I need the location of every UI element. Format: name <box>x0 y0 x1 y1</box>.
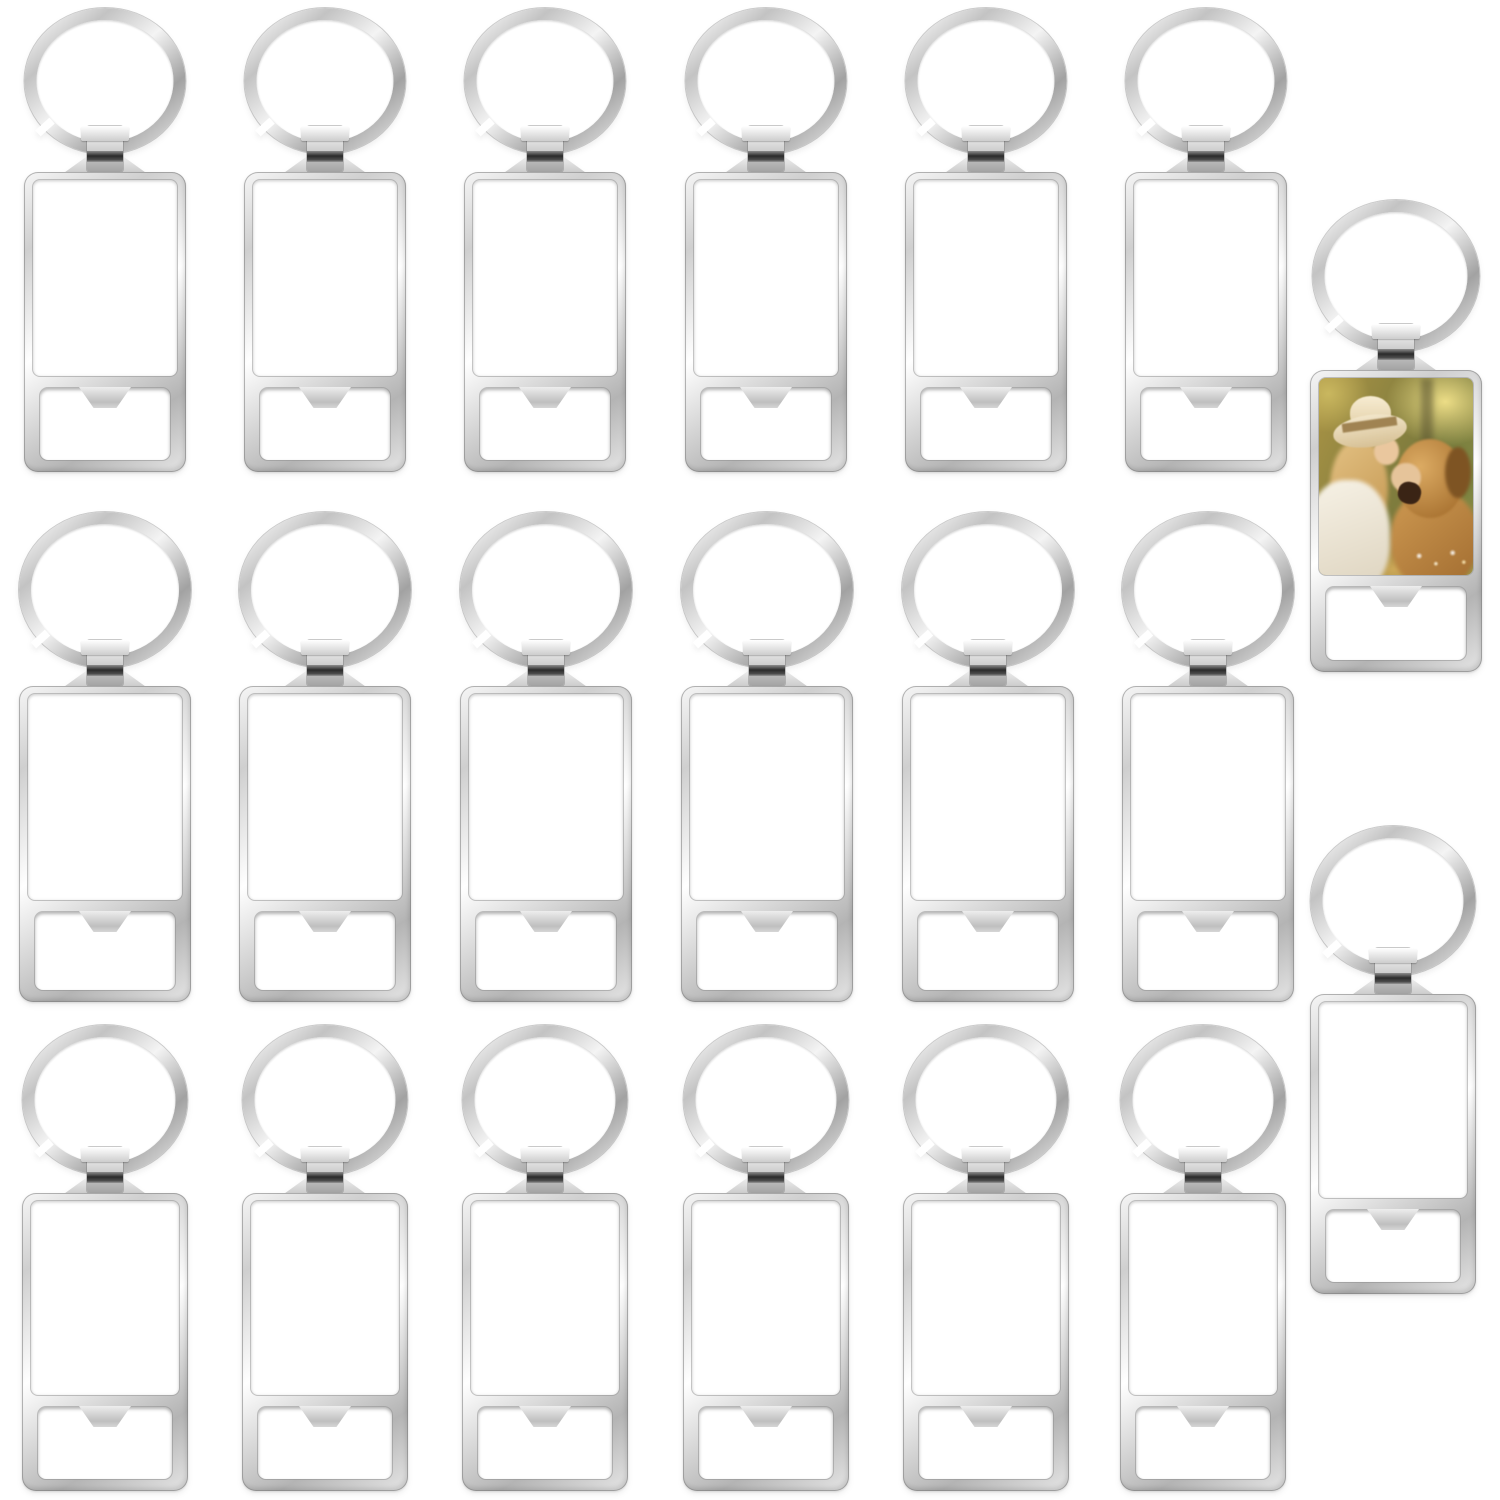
split-ring-gap <box>1322 939 1341 958</box>
sublimation-panel <box>694 180 838 376</box>
bottle-opener-hole <box>921 388 1051 460</box>
connector-clamp <box>87 1147 123 1193</box>
clamp-dark-band <box>527 1172 563 1183</box>
clamp-top-lip <box>1184 640 1232 655</box>
clamp-top-lip <box>1372 324 1420 339</box>
keychain-row1-col2 <box>244 8 406 472</box>
split-ring-gap <box>36 118 55 137</box>
connector-clamp <box>527 1147 563 1193</box>
clamp-top-lip <box>521 1147 569 1162</box>
clamp-top-lip <box>522 640 570 655</box>
clamp-dark-band <box>968 1172 1004 1183</box>
bottle-opener-hole <box>699 1407 833 1479</box>
bottle-opener-hole <box>478 1407 612 1479</box>
keychain-body-frame <box>244 172 406 472</box>
key-ring-hole <box>37 20 174 142</box>
split-ring-gap <box>915 1138 934 1157</box>
split-ring-gap <box>693 630 712 649</box>
keychain-body-frame <box>1310 994 1476 1294</box>
clamp-dark-band <box>1378 349 1414 360</box>
keychain-body-frame <box>1310 370 1482 672</box>
keychain-row1-col3 <box>464 8 626 472</box>
bottle-opener-tab <box>740 1406 792 1427</box>
sublimation-panel <box>253 180 397 376</box>
key-ring-hole <box>914 524 1062 656</box>
photo-wildflowers <box>1408 542 1470 574</box>
bottle-opener-tab <box>520 911 572 932</box>
split-ring-gap <box>1132 1138 1151 1157</box>
bottle-opener-tab <box>519 1406 571 1427</box>
keychain-body-frame <box>464 172 626 472</box>
sublimation-panel <box>914 180 1058 376</box>
keychain-row3-col1 <box>22 1025 188 1491</box>
bottle-opener-tab <box>962 911 1014 932</box>
keychain-body-frame <box>1122 686 1294 1002</box>
clamp-top-lip <box>962 1147 1010 1162</box>
key-ring-hole <box>475 1037 616 1163</box>
bottle-opener-tab <box>1180 387 1232 408</box>
keychain-body-frame <box>905 172 1067 472</box>
sublimation-panel <box>692 1201 840 1395</box>
connector-clamp <box>968 1147 1004 1193</box>
key-ring-hole <box>477 20 614 142</box>
connector-clamp <box>970 640 1006 686</box>
connector-clamp <box>527 126 563 172</box>
clamp-top-lip <box>81 640 129 655</box>
clamp-dark-band <box>1375 973 1411 984</box>
keychain-body-frame <box>681 686 853 1002</box>
keychain-row1-col4 <box>685 8 847 472</box>
bottle-opener-hole <box>258 1407 392 1479</box>
bottle-opener-hole <box>35 912 175 990</box>
key-ring-hole <box>1138 20 1275 142</box>
clamp-dark-band <box>1185 1172 1221 1183</box>
clamp-dark-band <box>307 1172 343 1183</box>
clamp-dark-band <box>970 665 1006 676</box>
sublimation-panel <box>251 1201 399 1395</box>
bottle-opener-hole <box>38 1407 172 1479</box>
clamp-top-lip <box>742 1147 790 1162</box>
clamp-dark-band <box>87 151 123 162</box>
connector-clamp <box>748 1147 784 1193</box>
key-ring-hole <box>916 1037 1057 1163</box>
split-ring-gap <box>34 1138 53 1157</box>
keychain-row3-col5 <box>903 1025 1069 1491</box>
clamp-dark-band <box>1190 665 1226 676</box>
bottle-opener-hole <box>1326 1210 1460 1282</box>
split-ring-gap <box>254 1138 273 1157</box>
clamp-dark-band <box>307 665 343 676</box>
clamp-top-lip <box>521 126 569 141</box>
clamp-top-lip <box>742 126 790 141</box>
sublimation-panel <box>1131 694 1285 900</box>
connector-clamp <box>528 640 564 686</box>
bottle-opener-tab <box>299 1406 351 1427</box>
connector-clamp <box>748 126 784 172</box>
bottle-opener-hole <box>1141 388 1271 460</box>
keychain-body-frame <box>460 686 632 1002</box>
keychain-body-frame <box>242 1193 408 1491</box>
keychain-row3-col6 <box>1120 1025 1286 1491</box>
photo-woman-dress <box>1319 480 1390 575</box>
connector-clamp <box>1190 640 1226 686</box>
keychain-side-blank <box>1310 826 1476 1294</box>
sublimation-panel <box>469 694 623 900</box>
keychain-body-frame <box>685 172 847 472</box>
clamp-dark-band <box>527 151 563 162</box>
key-ring-hole <box>35 1037 176 1163</box>
connector-clamp <box>307 640 343 686</box>
key-ring-hole <box>257 20 394 142</box>
bottle-opener-tab <box>519 387 571 408</box>
key-ring-hole <box>693 524 841 656</box>
clamp-top-lip <box>1179 1147 1227 1162</box>
sublimation-panel <box>1129 1201 1277 1395</box>
keychain-row3-col4 <box>683 1025 849 1491</box>
split-ring-gap <box>697 118 716 137</box>
clamp-top-lip <box>1182 126 1230 141</box>
clamp-top-lip <box>743 640 791 655</box>
key-ring-hole <box>1323 838 1464 964</box>
bottle-opener-tab <box>960 387 1012 408</box>
connector-clamp <box>968 126 1004 172</box>
split-ring-gap <box>914 630 933 649</box>
split-ring-gap <box>1134 630 1153 649</box>
bottle-opener-hole <box>1326 587 1466 660</box>
key-ring-hole <box>472 524 620 656</box>
clamp-dark-band <box>307 151 343 162</box>
clamp-dark-band <box>87 1172 123 1183</box>
clamp-top-lip <box>301 126 349 141</box>
sublimation-panel <box>690 694 844 900</box>
keychain-row1-col6 <box>1125 8 1287 472</box>
bottle-opener-hole <box>1138 912 1278 990</box>
connector-clamp <box>1375 948 1411 994</box>
keychain-row1-col5 <box>905 8 1067 472</box>
keychain-row2-col4 <box>681 512 853 1002</box>
keychain-body-frame <box>19 686 191 1002</box>
bottle-opener-hole <box>701 388 831 460</box>
bottle-opener-tab <box>1177 1406 1229 1427</box>
bottle-opener-hole <box>255 912 395 990</box>
key-ring-hole <box>255 1037 396 1163</box>
keychain-body-frame <box>903 1193 1069 1491</box>
clamp-top-lip <box>81 1147 129 1162</box>
keychain-body-frame <box>902 686 1074 1002</box>
keychain-body-frame <box>239 686 411 1002</box>
sublimation-panel <box>1134 180 1278 376</box>
bottle-opener-hole <box>40 388 170 460</box>
bottle-opener-hole <box>1136 1407 1270 1479</box>
connector-clamp <box>307 126 343 172</box>
keychain-row2-col2 <box>239 512 411 1002</box>
sublimation-panel <box>471 1201 619 1395</box>
connector-clamp <box>1378 324 1414 370</box>
keychain-row2-col1 <box>19 512 191 1002</box>
sublimation-panel <box>248 694 402 900</box>
keychain-row2-col3 <box>460 512 632 1002</box>
sublimation-panel <box>912 1201 1060 1395</box>
sublimation-panel <box>1319 1002 1467 1198</box>
key-ring-hole <box>918 20 1055 142</box>
bottle-opener-tab <box>299 911 351 932</box>
clamp-dark-band <box>748 1172 784 1183</box>
split-ring-gap <box>695 1138 714 1157</box>
keychain-body-frame <box>22 1193 188 1491</box>
key-ring-hole <box>1325 212 1468 340</box>
bottle-opener-tab <box>1182 911 1234 932</box>
bottle-opener-hole <box>480 388 610 460</box>
clamp-dark-band <box>528 665 564 676</box>
split-ring-gap <box>256 118 275 137</box>
key-ring-hole <box>1133 1037 1274 1163</box>
sample-photo-print <box>1319 378 1473 575</box>
keychain-body-frame <box>1125 172 1287 472</box>
clamp-dark-band <box>748 151 784 162</box>
keychain-body-frame <box>24 172 186 472</box>
product-photo-canvas <box>0 0 1500 1500</box>
bottle-opener-tab <box>79 911 131 932</box>
bottle-opener-tab <box>79 1406 131 1427</box>
bottle-opener-hole <box>697 912 837 990</box>
key-ring-hole <box>1134 524 1282 656</box>
keychain-row3-col2 <box>242 1025 408 1491</box>
bottle-opener-hole <box>260 388 390 460</box>
connector-clamp <box>1185 1147 1221 1193</box>
split-ring-gap <box>1137 118 1156 137</box>
split-ring-gap <box>917 118 936 137</box>
clamp-top-lip <box>301 640 349 655</box>
bottle-opener-tab <box>741 911 793 932</box>
sublimation-panel <box>1319 378 1473 575</box>
bottle-opener-tab <box>960 1406 1012 1427</box>
keychain-row2-col5 <box>902 512 1074 1002</box>
keychain-row2-col6 <box>1122 512 1294 1002</box>
clamp-dark-band <box>968 151 1004 162</box>
key-ring-hole <box>696 1037 837 1163</box>
sublimation-panel <box>31 1201 179 1395</box>
sublimation-panel <box>33 180 177 376</box>
connector-clamp <box>87 640 123 686</box>
split-ring-gap <box>476 118 495 137</box>
split-ring-gap <box>474 1138 493 1157</box>
keychain-body-frame <box>462 1193 628 1491</box>
clamp-top-lip <box>1369 948 1417 963</box>
bottle-opener-hole <box>919 1407 1053 1479</box>
connector-clamp <box>87 126 123 172</box>
bottle-opener-hole <box>476 912 616 990</box>
bottle-opener-tab <box>1370 586 1422 607</box>
clamp-top-lip <box>81 126 129 141</box>
connector-clamp <box>749 640 785 686</box>
bottle-opener-hole <box>918 912 1058 990</box>
sublimation-panel <box>28 694 182 900</box>
key-ring-hole <box>698 20 835 142</box>
split-ring-gap <box>472 630 491 649</box>
sublimation-panel <box>911 694 1065 900</box>
clamp-dark-band <box>749 665 785 676</box>
sublimation-panel <box>473 180 617 376</box>
connector-clamp <box>307 1147 343 1193</box>
bottle-opener-tab <box>740 387 792 408</box>
bottle-opener-tab <box>299 387 351 408</box>
clamp-dark-band <box>1188 151 1224 162</box>
bottle-opener-tab <box>1367 1209 1419 1230</box>
split-ring-gap <box>31 630 50 649</box>
clamp-dark-band <box>87 665 123 676</box>
split-ring-gap <box>1324 315 1343 334</box>
keychain-row3-col3 <box>462 1025 628 1491</box>
key-ring-hole <box>31 524 179 656</box>
bottle-opener-tab <box>79 387 131 408</box>
clamp-top-lip <box>962 126 1010 141</box>
key-ring-hole <box>251 524 399 656</box>
clamp-top-lip <box>964 640 1012 655</box>
clamp-top-lip <box>301 1147 349 1162</box>
connector-clamp <box>1188 126 1224 172</box>
keychain-body-frame <box>1120 1193 1286 1491</box>
split-ring-gap <box>251 630 270 649</box>
keychain-body-frame <box>683 1193 849 1491</box>
keychain-side-printed-sample <box>1310 200 1482 672</box>
keychain-row1-col1 <box>24 8 186 472</box>
